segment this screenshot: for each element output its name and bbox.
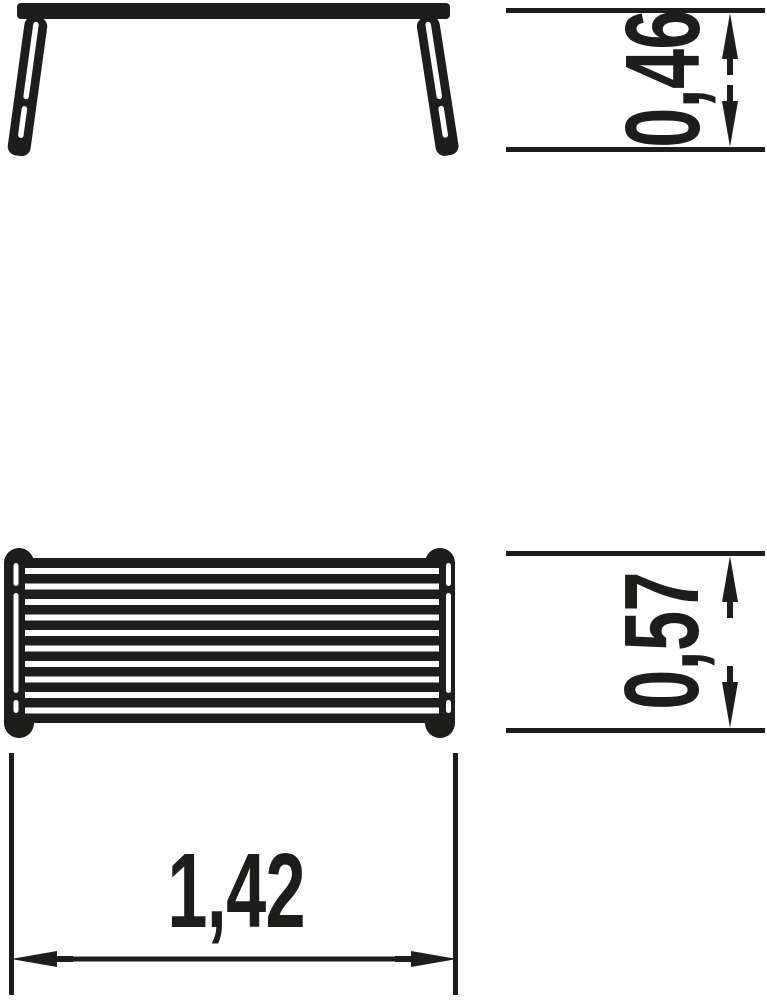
plan-slat-gap	[25, 584, 439, 590]
plan-seat-body	[18, 558, 441, 723]
plan-slat-gap	[25, 661, 439, 667]
plan-slat-gap	[25, 599, 439, 605]
plan-slat-gap	[25, 615, 439, 621]
arrow-up-icon	[722, 556, 738, 602]
height-dimension-arrows	[721, 13, 739, 147]
depth-dimension-arrows	[721, 556, 739, 728]
plan-slat-gap	[25, 692, 439, 698]
plan-slat-gap	[25, 568, 439, 574]
arrow-down-icon	[722, 101, 738, 147]
front-left-leg	[7, 15, 49, 157]
plan-slat-gap	[25, 646, 439, 652]
plan-slat-gap	[25, 630, 439, 636]
arrow-left-icon	[11, 951, 57, 967]
depth-extension-line-bottom	[506, 728, 765, 733]
front-seat-bar	[17, 3, 450, 19]
front-right-leg	[416, 15, 460, 157]
width-dimension-arrows	[11, 950, 457, 968]
arrow-right-icon	[411, 951, 457, 967]
plan-view	[0, 540, 470, 750]
width-dimension-line	[69, 957, 399, 962]
plan-slat-gap	[25, 677, 439, 683]
plan-slat-gap	[25, 708, 439, 714]
arrow-down-icon	[722, 682, 738, 728]
arrow-up-icon	[722, 13, 738, 59]
front-view	[0, 0, 470, 170]
dimension-drawing: 0,46 0,57	[0, 0, 767, 1000]
